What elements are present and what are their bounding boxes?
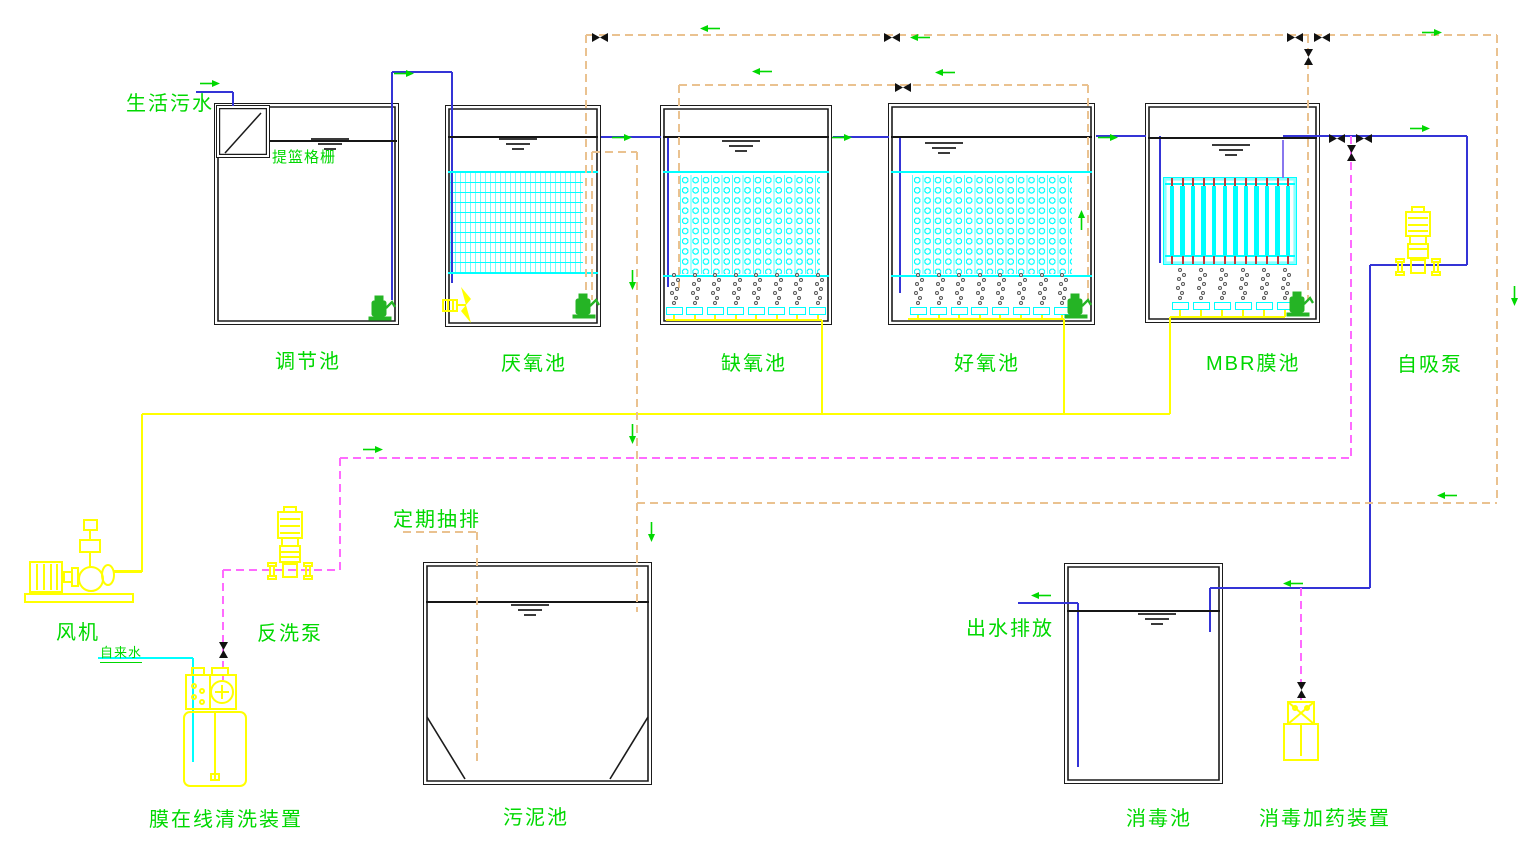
membrane-tick (1224, 256, 1226, 264)
aeration-bubble (1262, 268, 1266, 272)
air-diffuser (1193, 302, 1210, 310)
air-pipe (1242, 310, 1244, 317)
flow-arrow-l (1030, 587, 1052, 605)
disinfection-dosing-unit-icon (1280, 694, 1322, 766)
membrane-tick (1203, 256, 1205, 264)
aeration-bubble (1241, 268, 1245, 272)
air-diffuser (748, 307, 765, 315)
aeration-bubble (713, 273, 717, 277)
aeration-bubble (1021, 296, 1025, 300)
aeration-bubble (919, 287, 923, 291)
aeration-bubble (936, 282, 940, 286)
air-pipe (1263, 310, 1265, 317)
aeration-bubble (799, 278, 803, 282)
aeration-bubble (798, 287, 802, 291)
water-pipe (667, 137, 669, 287)
aeration-bubble (1019, 273, 1023, 277)
aeration-bubble (732, 291, 736, 295)
submersible-mixer-icon (442, 284, 480, 324)
aeration-bubble (737, 287, 741, 291)
sludge-pipe (585, 35, 587, 305)
membrane-tick (1277, 256, 1279, 264)
water-pipe (1466, 136, 1468, 265)
label-mbr-tank: MBR膜池 (1206, 347, 1300, 376)
air-pipe (666, 319, 822, 321)
label-anaerobic-tank: 厌氧池 (501, 347, 567, 376)
sludge-pipe (591, 152, 593, 300)
air-diffuser (951, 307, 968, 315)
flow-arrow-l (909, 29, 931, 47)
water-level-symbol (1138, 613, 1176, 625)
membrane-tick (1287, 256, 1289, 264)
aeration-bubble (697, 278, 701, 282)
membrane-cleaning-unit-icon (182, 666, 250, 790)
air-pipe (142, 413, 1170, 415)
membrane-tick (1255, 178, 1257, 186)
aeration-bubble (1287, 273, 1291, 277)
aeration-bubble (1064, 278, 1068, 282)
aeration-bubble (937, 301, 941, 305)
air-pipe (821, 320, 823, 414)
submersible-pump-icon (1284, 290, 1314, 325)
air-diffuser (1033, 307, 1050, 315)
aeration-bubble (1044, 278, 1048, 282)
air-pipe (917, 315, 919, 319)
label-effluent-discharge: 出水排放 (966, 612, 1054, 641)
air-pipe (714, 315, 716, 320)
aeration-bubble (1222, 291, 1226, 295)
membrane-tick (1213, 178, 1215, 186)
valve-icon (1355, 131, 1373, 149)
membrane-element (1275, 186, 1280, 256)
aeration-bubble (1265, 282, 1269, 286)
aeration-bubble (715, 296, 719, 300)
aeration-bubble (1063, 287, 1067, 291)
membrane-tick (1203, 178, 1205, 186)
submersible-pump-icon (570, 292, 600, 327)
media-boundary-line (891, 171, 1092, 173)
water-pipe (451, 72, 453, 283)
air-pipe (694, 315, 696, 320)
membrane-tick (1182, 178, 1184, 186)
label-membrane-cleaning-unit: 膜在线清洗装置 (149, 803, 303, 832)
membrane-tick (1266, 256, 1268, 264)
flow-arrow-r (1421, 24, 1443, 42)
aeration-bubble (957, 301, 961, 305)
water-pipe (232, 92, 234, 106)
aeration-bubble (1181, 282, 1185, 286)
label-periodic-discharge: 定期抽排 (393, 503, 481, 532)
aeration-bubble (1180, 291, 1184, 295)
aeration-bubble (734, 301, 738, 305)
valve-icon (1328, 131, 1346, 149)
aeration-bubble (1224, 273, 1228, 277)
membrane-tick (1192, 178, 1194, 186)
aeration-bubble (1262, 296, 1266, 300)
aeration-bubble (816, 301, 820, 305)
aeration-bubble (981, 287, 985, 291)
aeration-bubble (696, 287, 700, 291)
aeration-bubble (756, 296, 760, 300)
aeration-bubble (738, 278, 742, 282)
aeration-bubble (1223, 282, 1227, 286)
aeration-bubble (733, 282, 737, 286)
aeration-bubble (795, 301, 799, 305)
water-level-symbol (1212, 144, 1250, 156)
sludge-pipe (586, 34, 1497, 36)
aeration-bubble (978, 301, 982, 305)
aeration-bubble (1039, 282, 1043, 286)
air-diffuser (910, 307, 927, 315)
air-pipe (755, 315, 757, 320)
valve-icon (218, 641, 229, 664)
air-diffuser (768, 307, 785, 315)
flow-arrow-r (362, 441, 384, 459)
flow-arrow-d (1510, 285, 1519, 312)
screen-diagonal (217, 106, 271, 159)
aerobic-media (912, 175, 1072, 274)
aeration-bubble (961, 278, 965, 282)
flow-arrow-l (934, 64, 956, 82)
aeration-bubble (1199, 296, 1203, 300)
aeration-bubble (941, 278, 945, 282)
permeate-riser-pipe (1282, 140, 1284, 178)
water-surface-line (663, 136, 829, 138)
aeration-bubble (676, 278, 680, 282)
air-diffuser (992, 307, 1009, 315)
sludge-pipe (1307, 35, 1309, 300)
aeration-bubble (758, 278, 762, 282)
backwash-pump-icon (266, 506, 314, 582)
air-pipe (1200, 310, 1202, 317)
aeration-bubble (980, 296, 984, 300)
aeration-bubble (754, 273, 758, 277)
mbr-process-flow-diagram: 生活污水 提篮格栅 调节池 厌氧池 缺氧池 好氧池 MBR膜池 自吸泵 风机 反… (0, 0, 1538, 848)
aeration-bubble (940, 287, 944, 291)
aeration-bubble (693, 301, 697, 305)
media-boundary-line (448, 272, 598, 274)
media-boundary-line (448, 171, 598, 173)
aeration-bubble (1043, 287, 1047, 291)
aeration-bubble (1202, 282, 1206, 286)
media-boundary-line (1165, 183, 1295, 185)
aeration-bubble (916, 301, 920, 305)
sludge-pipe (637, 502, 1497, 504)
aeration-bubble (734, 273, 738, 277)
valve-icon (1303, 48, 1314, 71)
membrane-tick (1245, 256, 1247, 264)
aeration-bubble (754, 301, 758, 305)
flow-arrow-r (1409, 120, 1431, 138)
aeration-bubble (695, 296, 699, 300)
aeration-bubble (1019, 301, 1023, 305)
valve-icon (894, 80, 912, 98)
membrane-tick (1192, 256, 1194, 264)
membrane-element (1201, 186, 1206, 256)
air-pipe (1020, 315, 1022, 319)
membrane-element (1212, 186, 1217, 256)
chemical-pipe (339, 458, 341, 570)
air-pipe (1221, 310, 1223, 317)
membrane-element (1265, 186, 1270, 256)
valve-icon (1313, 30, 1331, 48)
membrane-element (1286, 186, 1291, 256)
aeration-bubble (918, 296, 922, 300)
aeration-bubble (820, 278, 824, 282)
air-diffuser (930, 307, 947, 315)
aeration-bubble (1245, 273, 1249, 277)
water-pipe (391, 72, 393, 300)
aeration-bubble (691, 291, 695, 295)
aeration-bubble (757, 287, 761, 291)
aeration-bubble (775, 273, 779, 277)
aeration-bubble (920, 278, 924, 282)
water-level-symbol (722, 140, 760, 152)
label-basket-screen: 提篮格栅 (272, 146, 336, 167)
aeration-bubble (672, 273, 676, 277)
chemical-pipe (340, 457, 1351, 459)
air-diffuser (1256, 302, 1273, 310)
aeration-bubble (1203, 273, 1207, 277)
air-diffuser (971, 307, 988, 315)
air-pipe (958, 315, 960, 319)
aeration-bubble (795, 273, 799, 277)
air-diffuser (1172, 302, 1189, 310)
sludge-pipe (592, 151, 637, 153)
membrane-element (1170, 186, 1175, 256)
aeration-bubble (1266, 273, 1270, 277)
media-boundary-line (663, 275, 829, 277)
air-pipe (1179, 310, 1181, 317)
flow-arrow-r (611, 129, 633, 147)
membrane-tick (1171, 256, 1173, 264)
aeration-bubble (815, 282, 819, 286)
membrane-tick (1234, 178, 1236, 186)
label-influent: 生活污水 (126, 87, 214, 116)
aeration-bubble (674, 296, 678, 300)
flow-arrow-d (628, 269, 637, 296)
sludge-pipe (636, 152, 638, 612)
aeration-bubble (1042, 296, 1046, 300)
membrane-element (1233, 186, 1238, 256)
aeration-bubble (717, 278, 721, 282)
flow-arrow-l (1436, 487, 1458, 505)
aeration-bubble (960, 287, 964, 291)
label-regulation-tank: 调节池 (275, 345, 341, 374)
valve-icon (1346, 144, 1357, 167)
membrane-element (1180, 186, 1185, 256)
membrane-tick (1234, 256, 1236, 264)
disinfection-tank (1064, 563, 1223, 784)
flow-arrow-l (751, 63, 773, 81)
aeration-bubble (1199, 268, 1203, 272)
water-surface-line (891, 136, 1092, 138)
aeration-bubble (1220, 296, 1224, 300)
aeration-bubble (1040, 301, 1044, 305)
label-blower: 风机 (56, 616, 100, 645)
membrane-element (1244, 186, 1249, 256)
membrane-tick (1213, 256, 1215, 264)
membrane-element (1191, 186, 1196, 256)
aeration-bubble (818, 296, 822, 300)
aeration-bubble (1178, 268, 1182, 272)
flow-arrow-u (1077, 209, 1086, 236)
aeration-bubble (775, 301, 779, 305)
membrane-tick (1171, 178, 1173, 186)
label-disinfection-dosing-unit: 消毒加药装置 (1259, 802, 1391, 831)
air-pipe (979, 315, 981, 319)
chemical-pipe (1350, 136, 1352, 458)
water-surface-line (1148, 137, 1317, 139)
self-priming-pump-icon (1394, 206, 1442, 278)
flow-arrow-r (831, 129, 853, 147)
aeration-bubble (692, 282, 696, 286)
valve-icon (591, 30, 609, 48)
aeration-bubble (916, 273, 920, 277)
membrane-tick (1255, 256, 1257, 264)
basket-screen-box (216, 105, 270, 158)
label-self-priming-pump: 自吸泵 (1397, 348, 1463, 377)
water-pipe (1077, 603, 1079, 767)
membrane-tick (1277, 178, 1279, 186)
air-pipe (673, 315, 675, 320)
flow-arrow-d (628, 423, 637, 450)
membrane-element (1223, 186, 1228, 256)
air-diffuser (727, 307, 744, 315)
aeration-bubble (816, 273, 820, 277)
aeration-bubble (937, 273, 941, 277)
air-diffuser (1214, 302, 1231, 310)
valve-icon (883, 30, 901, 48)
aeration-bubble (773, 291, 777, 295)
aeration-bubble (1241, 296, 1245, 300)
sludge-hopper (423, 562, 652, 785)
aeration-bubble (736, 296, 740, 300)
water-pipe (1159, 136, 1161, 263)
aeration-bubble (1286, 282, 1290, 286)
submersible-pump-icon (366, 294, 396, 329)
air-pipe (735, 315, 737, 320)
aeration-bubble (716, 287, 720, 291)
aeration-bubble (1023, 278, 1027, 282)
aeration-bubble (1201, 291, 1205, 295)
aeration-bubble (1022, 287, 1026, 291)
sludge-pipe (678, 85, 680, 290)
air-pipe (938, 315, 940, 319)
aeration-bubble (693, 273, 697, 277)
air-diffuser (809, 307, 826, 315)
membrane-tick (1287, 178, 1289, 186)
valve-icon (1286, 30, 1304, 48)
aeration-bubble (777, 296, 781, 300)
air-diffuser (707, 307, 724, 315)
aeration-bubble (1040, 273, 1044, 277)
label-tap-water: 自来水 (100, 642, 142, 663)
aeration-bubble (778, 287, 782, 291)
air-pipe (776, 315, 778, 320)
air-diffuser (1235, 302, 1252, 310)
valve-icon (1296, 681, 1307, 704)
air-pipe (1041, 315, 1043, 319)
aeration-bubble (978, 273, 982, 277)
media-boundary-line (663, 171, 829, 173)
aeration-bubble (1178, 296, 1182, 300)
aeration-bubble (797, 296, 801, 300)
label-disinfection-tank: 消毒池 (1126, 802, 1192, 831)
label-backwash-pump: 反洗泵 (257, 617, 323, 646)
submersible-pump-icon (1062, 292, 1092, 327)
water-pipe (1369, 265, 1371, 588)
roots-blower-icon (24, 518, 144, 606)
aeration-bubble (1264, 291, 1268, 295)
flow-arrow-r (393, 65, 415, 83)
aeration-bubble (977, 282, 981, 286)
aeration-bubble (1244, 282, 1248, 286)
aeration-bubble (675, 287, 679, 291)
sludge-pipe (1496, 35, 1498, 503)
label-aerobic-tank: 好氧池 (954, 347, 1020, 376)
anoxic-media (680, 175, 820, 274)
air-pipe (1170, 316, 1285, 318)
anaerobic-media (450, 173, 583, 273)
aeration-bubble (1283, 268, 1287, 272)
aeration-bubble (713, 301, 717, 305)
membrane-tick (1245, 178, 1247, 186)
air-diffuser (666, 307, 683, 315)
sludge-pipe (679, 84, 1088, 86)
flow-arrow-d (647, 521, 656, 548)
membrane-element (1254, 186, 1259, 256)
aeration-bubble (672, 301, 676, 305)
water-surface-line (1067, 610, 1220, 612)
water-level-symbol (499, 138, 537, 150)
aeration-bubble (939, 296, 943, 300)
flow-arrow-r (1097, 129, 1119, 147)
water-level-symbol (925, 142, 963, 154)
membrane-tick (1266, 178, 1268, 186)
aeration-bubble (814, 291, 818, 295)
label-sludge-tank: 污泥池 (503, 801, 569, 830)
sludge-pipe (1087, 85, 1089, 300)
air-pipe (817, 315, 819, 320)
membrane-tick (1182, 256, 1184, 264)
air-pipe (999, 315, 1001, 319)
flow-arrow-l (699, 20, 721, 38)
air-diffuser (1013, 307, 1030, 315)
flow-arrow-l (1282, 575, 1304, 593)
aeration-bubble (779, 278, 783, 282)
air-diffuser (686, 307, 703, 315)
air-diffuser (789, 307, 806, 315)
air-pipe (796, 315, 798, 320)
membrane-tick (1224, 178, 1226, 186)
aeration-bubble (819, 287, 823, 291)
aeration-bubble (1243, 291, 1247, 295)
aeration-bubble (774, 282, 778, 286)
aeration-bubble (1182, 273, 1186, 277)
water-pipe (899, 137, 901, 293)
label-anoxic-tank: 缺氧池 (721, 347, 787, 376)
air-pipe (1169, 317, 1171, 414)
aeration-bubble (1220, 268, 1224, 272)
aeration-bubble (982, 278, 986, 282)
air-pipe (1063, 319, 1065, 414)
